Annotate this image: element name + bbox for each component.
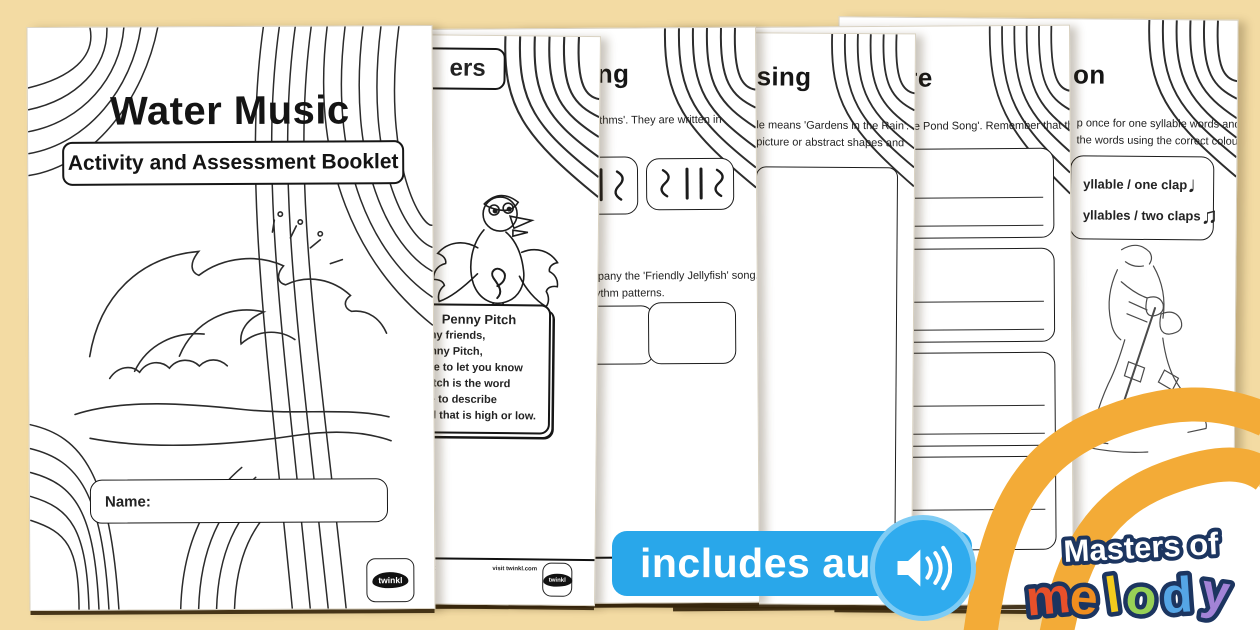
answer-box bbox=[899, 248, 1056, 343]
page3-task-text: mpany the 'Friendly Jellyfish' song. hyt… bbox=[589, 268, 759, 303]
speech-line: t pitch is the word bbox=[416, 376, 540, 393]
twinkl-logo: twinkl bbox=[542, 563, 572, 597]
booklet-cover-page: Water Music Activity and Assessment Book… bbox=[26, 25, 435, 611]
page4-title-fragment: sing bbox=[757, 61, 812, 92]
page6-instructions: p once for one syllable words and the wo… bbox=[1076, 115, 1238, 151]
drawing-box bbox=[753, 166, 898, 544]
logo-letter-m: m bbox=[1024, 567, 1073, 627]
name-field[interactable]: Name: bbox=[90, 478, 388, 524]
character-name: Penny Pitch bbox=[417, 311, 541, 327]
eighth-notes-icon: ♫ bbox=[1201, 202, 1218, 229]
answer-box bbox=[648, 302, 736, 365]
quarter-note-icon: ♩ bbox=[1187, 171, 1210, 198]
logo-letter-e: e bbox=[1068, 568, 1100, 626]
rhythm-box bbox=[646, 158, 734, 211]
answer-box bbox=[899, 352, 1056, 447]
hockey-player-illustration bbox=[1067, 241, 1219, 504]
stick-notation bbox=[647, 159, 733, 210]
speech-line: here to let you know bbox=[416, 360, 540, 377]
wave-crest-illustration bbox=[74, 211, 391, 445]
logo-letter-l: l bbox=[1102, 566, 1124, 623]
page3-instructions: hythms'. They are written in bbox=[588, 112, 722, 130]
page4-instructions: le means 'Gardens in the Rain'. picture … bbox=[756, 117, 909, 152]
name-label: Name: bbox=[105, 493, 151, 510]
page6-title-fragment: on bbox=[1073, 59, 1106, 90]
speaker-icon bbox=[894, 541, 952, 595]
twinkl-logo: twinkl bbox=[366, 558, 414, 602]
page2-title-fragment: ers bbox=[449, 55, 485, 83]
booklet-subtitle-box: Activity and Assessment Booklet bbox=[62, 140, 404, 186]
logo-letter-y: y bbox=[1198, 562, 1234, 621]
logo-letter-d: d bbox=[1160, 566, 1194, 624]
promo-image: on p once for one syllable words and the… bbox=[0, 0, 1260, 630]
audio-play-button[interactable] bbox=[870, 515, 976, 621]
logo-line1: Masters of bbox=[1063, 526, 1220, 569]
masters-of-melody-logo: Masters of m e l o d y bbox=[1022, 518, 1260, 630]
legend-two-syllables: yllables / two claps bbox=[1083, 207, 1201, 223]
speech-line: Penny Pitch, bbox=[417, 344, 541, 361]
syllable-legend-box: yllable / one clap ♩ yllables / two clap… bbox=[1070, 155, 1215, 240]
page5-instructions: he Pond Song'. Remember that the bbox=[908, 118, 1074, 136]
logo-letter-o: o bbox=[1124, 568, 1159, 626]
footer-link: visit twinkl.com bbox=[492, 566, 537, 572]
answer-box bbox=[898, 148, 1055, 239]
booklet-subtitle: Activity and Assessment Booklet bbox=[68, 150, 399, 176]
speech-line: use to describe bbox=[416, 392, 540, 409]
legend-one-syllable: yllable / one clap bbox=[1083, 176, 1187, 192]
speech-line: o my friends, bbox=[417, 328, 541, 345]
booklet-title: Water Music bbox=[28, 88, 432, 135]
